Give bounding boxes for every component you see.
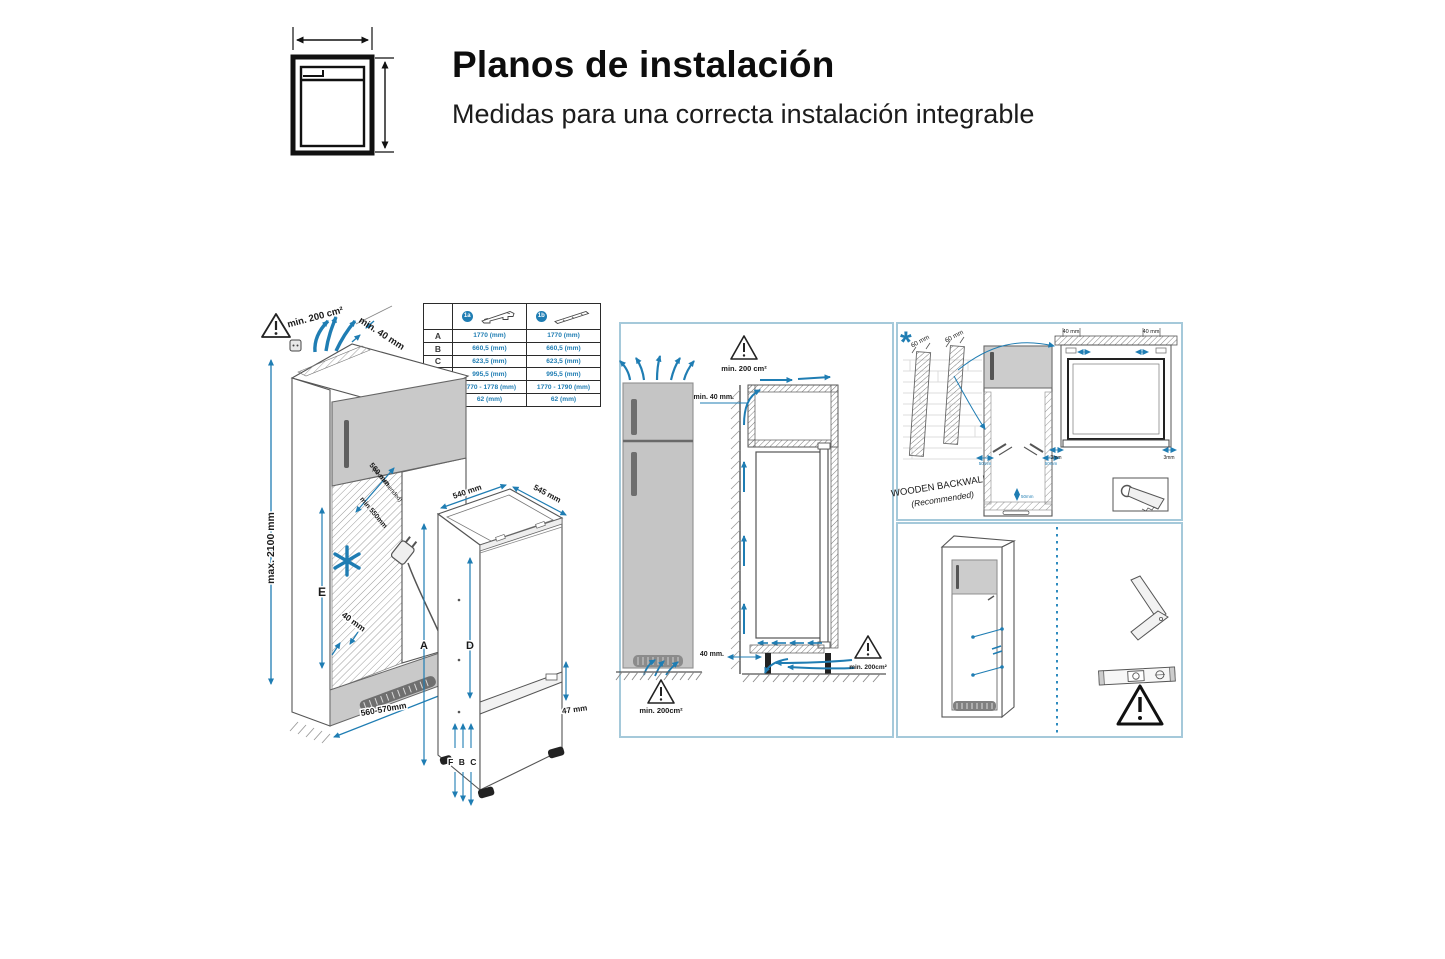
vent-area-label: min. 200 cm² [286, 305, 344, 331]
max-height-label: max. 2100 mm [265, 512, 277, 584]
leveling-panel [897, 523, 1182, 737]
fridge-top-view [1068, 359, 1164, 439]
door-top-view [1063, 440, 1169, 447]
top-clearance-right-label: 40 mm [1143, 329, 1160, 335]
floor-hatch [290, 722, 330, 743]
niche-dimensions-icon [293, 27, 394, 153]
airflow-panel: min. 200cm² min. 200 cm² min. 40 mm. [616, 323, 893, 737]
cabinet-left-panel [292, 378, 330, 726]
cabinet-niche-diagram: min. 200 cm² min. 40 mm [262, 305, 468, 743]
fridge-height-label: A [420, 640, 428, 652]
top-clearance-left-label: 40 mm [1063, 329, 1080, 335]
front-vent-label: min. 200cm² [639, 706, 683, 715]
leg [825, 653, 831, 674]
fridge-door-edge [820, 449, 828, 642]
installation-plans-page: Planos de instalación Medidas para una c… [0, 0, 1445, 959]
upper-handle [631, 399, 637, 435]
fridge-iso-diagram: 540 mm 545 mm A D 47 mm F B C [420, 483, 588, 805]
door-gap-label: 47 mm [561, 703, 587, 715]
backwall-panel: * 60 mm 60 mm WOODEN BACKWALL (Recommend… [890, 323, 1182, 520]
fridge-front-face [480, 518, 562, 790]
plinth-strip [750, 645, 824, 653]
door-handle [344, 420, 349, 468]
ceiling-strip [1055, 336, 1177, 345]
screw-offset-bottom-label: 50mm [1021, 494, 1034, 499]
upper-cabinet-box [748, 385, 838, 447]
rear-vent-label: min. 200cm² [849, 664, 887, 671]
base-gap-label: 40 mm. [700, 651, 724, 658]
warning-triangle-icon [262, 314, 290, 337]
power-outlet-icon [290, 340, 301, 351]
top-gap-label: min. 40 mm. [694, 394, 735, 401]
fridge-side-view [756, 452, 826, 638]
inner-height-label: E [318, 585, 326, 599]
door-handle [956, 565, 959, 589]
cabinet-top-section [984, 346, 1052, 388]
top-vent-label: min. 200 cm² [721, 364, 767, 373]
fridge-depth-label: 545 mm [532, 483, 563, 505]
fridge-left-face [438, 514, 480, 790]
screw-offset-left-label: 50mm [979, 461, 992, 466]
vent-grille [953, 701, 996, 711]
side-clearance-left-label: 3mm [1050, 455, 1061, 461]
door-handle [990, 352, 994, 380]
upper-door-label: D [466, 640, 474, 652]
saw-icon [1113, 478, 1168, 511]
side-clearance-right-label: 3mm [1163, 455, 1174, 461]
screw-offset-right-label: 50mm [1045, 461, 1058, 466]
lower-dims-label: F B C [448, 757, 478, 767]
lower-handle [631, 452, 637, 496]
diagram-scene: min. 200 cm² min. 40 mm [0, 0, 1445, 959]
right-wall [831, 385, 838, 648]
